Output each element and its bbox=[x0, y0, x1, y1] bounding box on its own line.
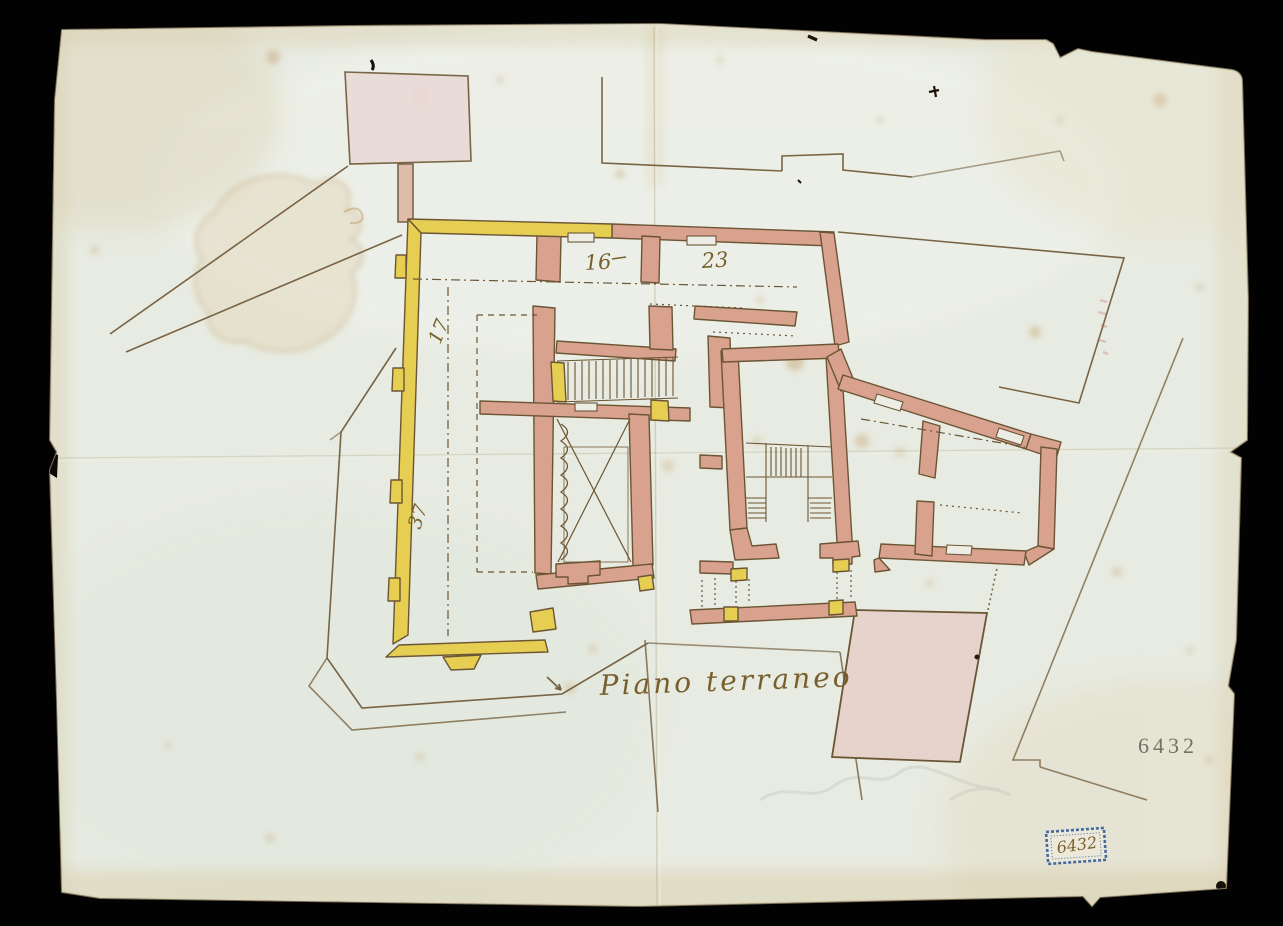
inventory-stamp: 6432 bbox=[1046, 828, 1106, 864]
room-label-16: 16 bbox=[584, 250, 612, 275]
room-label-23: 23 bbox=[700, 248, 729, 273]
catalog-number: 6432 bbox=[1138, 733, 1198, 758]
photograph-of-plan: 16 23 17 37 Piano terraneo 6432 6432 bbox=[0, 0, 1283, 926]
plan-drawing-svg: 16 23 17 37 Piano terraneo 6432 6432 bbox=[0, 0, 1283, 926]
site-block-washed bbox=[832, 610, 987, 762]
ink-blot bbox=[975, 655, 980, 660]
